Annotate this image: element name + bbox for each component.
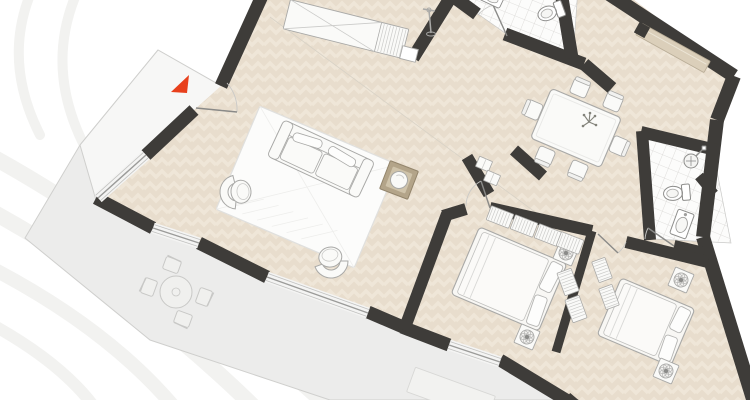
- terrace-table: [160, 276, 192, 308]
- wall-bath2-left: [642, 131, 650, 240]
- floor-plan-page: [0, 0, 750, 400]
- floorplan-svg: [0, 0, 750, 400]
- wall-bed1-ne-a: [443, 209, 466, 216]
